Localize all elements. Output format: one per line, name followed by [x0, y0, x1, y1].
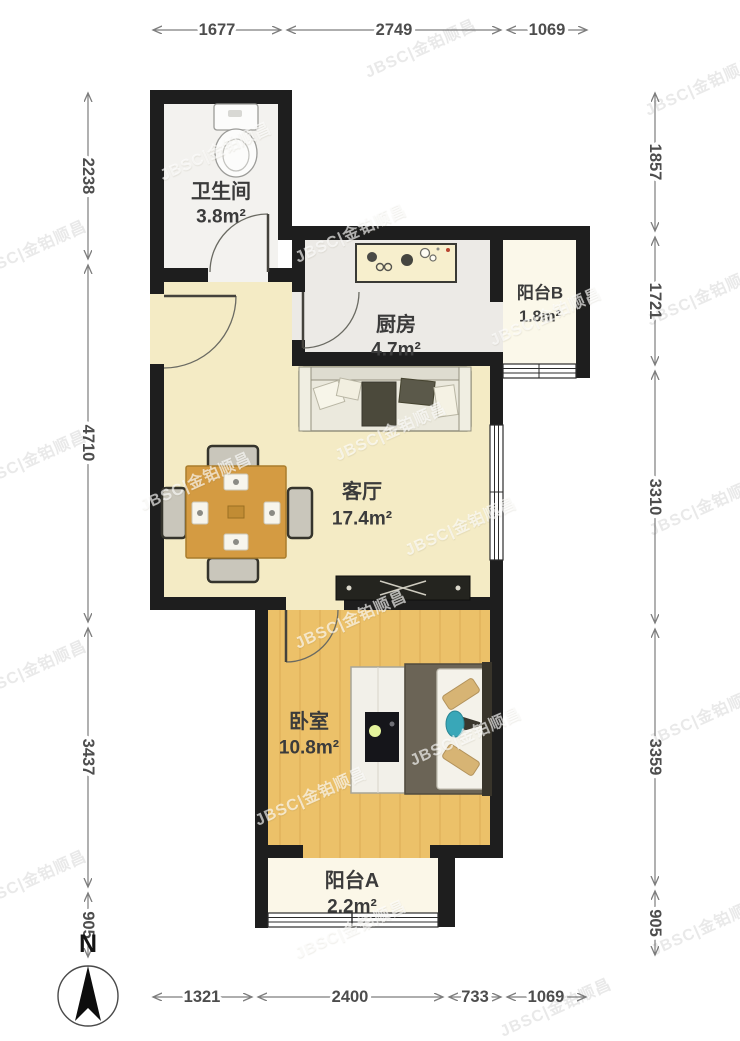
north-compass: N [58, 930, 118, 1026]
dim-top-3: 1069 [529, 21, 566, 39]
dim-bottom-4: 1069 [528, 988, 565, 1006]
dim-top-2: 2749 [376, 21, 413, 39]
north-needle-icon [75, 966, 101, 1021]
dim-right-1: 1857 [646, 144, 664, 181]
dim-top-1: 1677 [199, 21, 236, 39]
dim-left-3: 3437 [79, 739, 97, 776]
dim-right-2: 1721 [646, 283, 664, 320]
toilet [214, 104, 258, 177]
headboard [482, 662, 492, 796]
balcony-b-window [503, 364, 576, 378]
living-room-label: 客厅 [341, 479, 382, 503]
bedroom-area: 10.8m² [279, 738, 339, 759]
dim-right-4: 3359 [646, 739, 664, 776]
bathroom-area: 3.8m² [196, 207, 246, 228]
wardrobe [351, 667, 405, 793]
dim-left-1: 2238 [79, 158, 97, 195]
living-room-window [490, 425, 503, 560]
bed [405, 662, 492, 796]
bathroom-label: 卫生间 [191, 180, 251, 203]
kitchen-counter [356, 244, 456, 282]
floorplan-page: { "watermark": { "text": "JBSC|金铂顺昌" }, … [0, 0, 740, 1036]
dim-right-3: 3310 [646, 479, 664, 516]
bedroom-label: 卧室 [289, 709, 329, 733]
balcony-a-area: 2.2m² [327, 897, 377, 918]
floor-plan-svg: 卫生间 3.8m² 厨房 4.7m² 阳台B 1.8m² 客厅 17.4m² 卧… [0, 0, 740, 1036]
balcony-b-label: 阳台B [517, 283, 563, 303]
tv-stand [336, 576, 470, 600]
tv-screen [365, 712, 399, 762]
dim-bottom-1: 1321 [184, 988, 221, 1006]
dim-bottom-2: 2400 [332, 988, 369, 1006]
kitchen-area: 4.7m² [371, 340, 421, 361]
sofa [299, 367, 471, 431]
balcony-b-area: 1.8m² [519, 309, 561, 326]
dim-left-2: 4710 [79, 425, 97, 462]
north-label: N [79, 930, 97, 958]
dim-bottom-3: 733 [461, 988, 489, 1006]
balcony-a-label: 阳台A [325, 868, 379, 892]
kitchen-label: 厨房 [376, 312, 416, 336]
dim-right-5: 905 [646, 909, 664, 937]
living-room-area: 17.4m² [332, 509, 392, 530]
